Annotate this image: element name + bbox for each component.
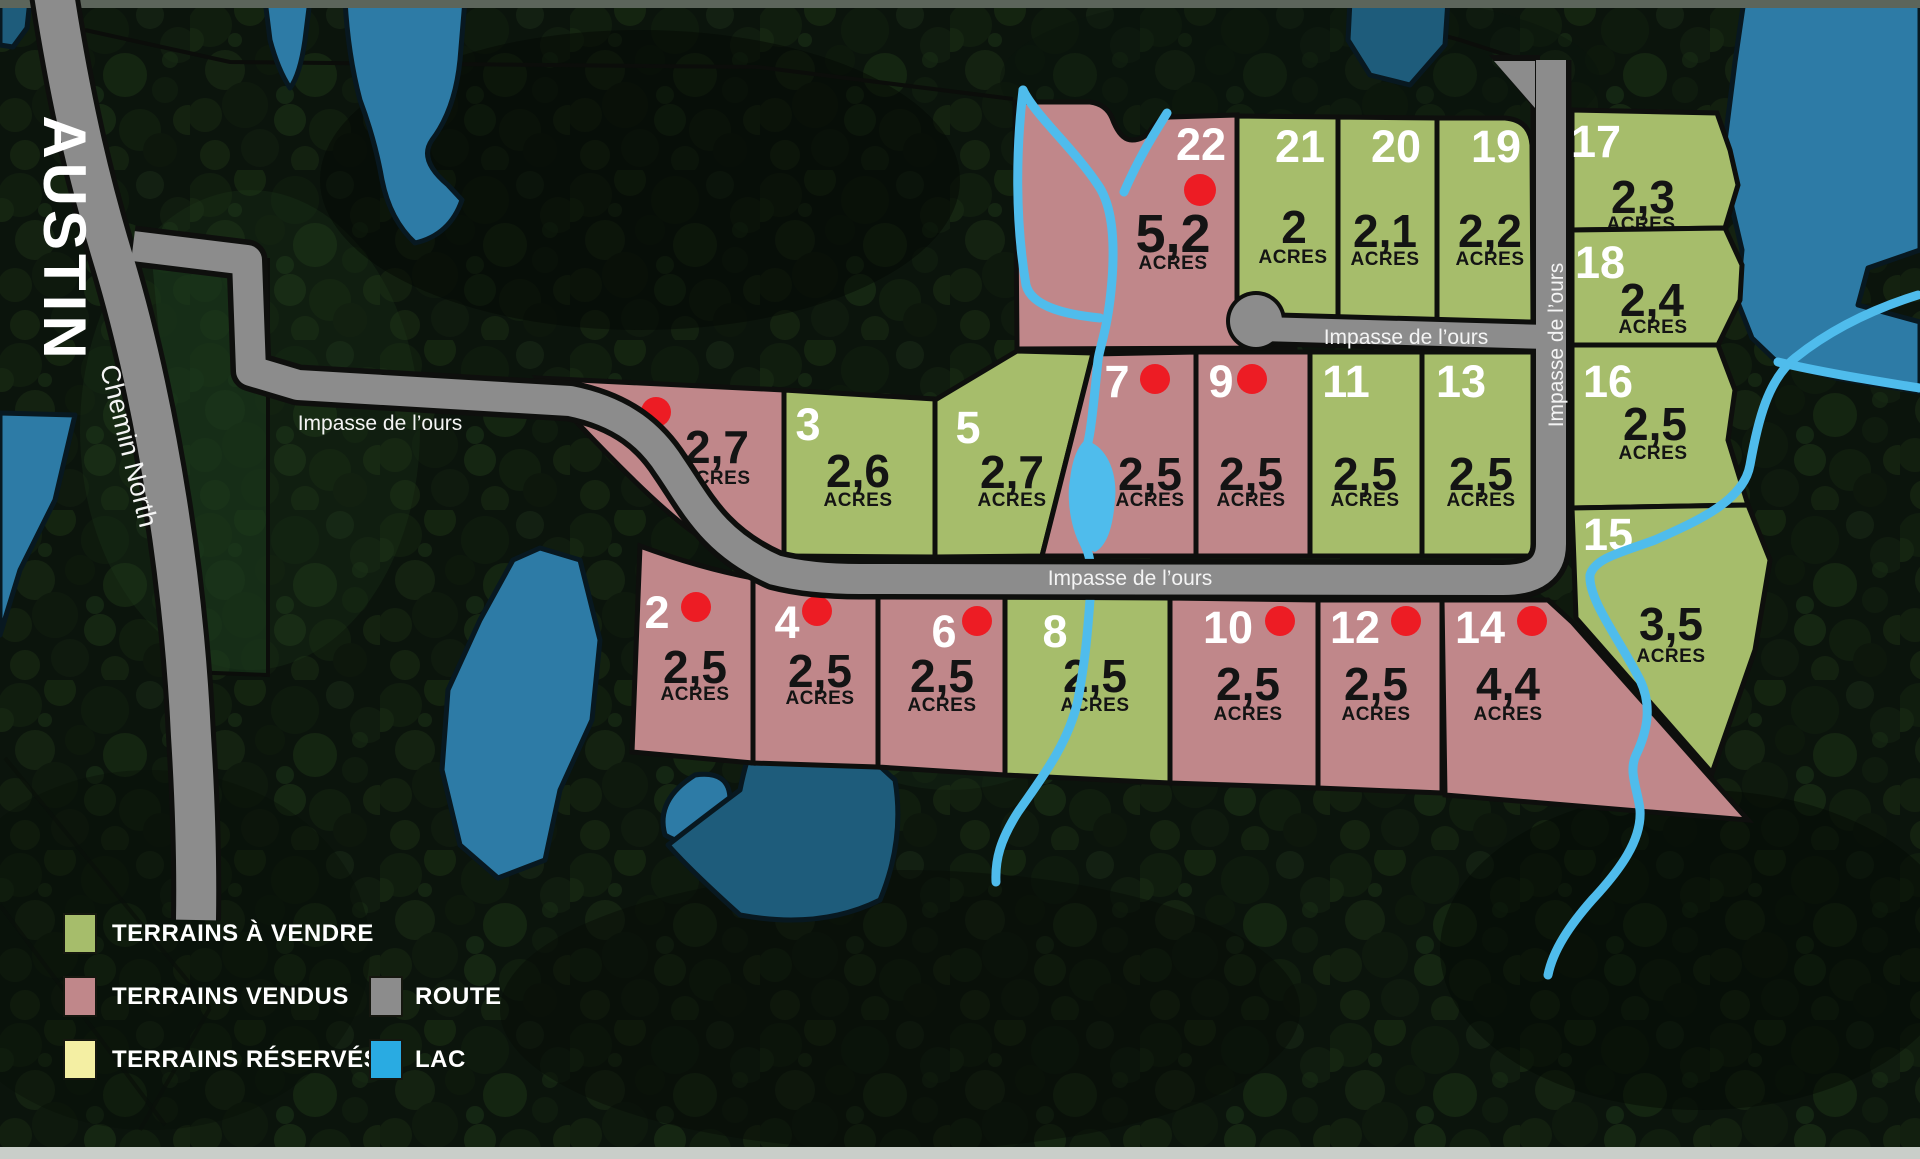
lot-22-sold-dot: [1184, 174, 1216, 206]
culdesac-circle: [1230, 295, 1282, 347]
lot-7-sold-dot: [1140, 364, 1170, 394]
lot-4: 4 2,5 ACRES: [753, 578, 878, 767]
lot-21-number: 21: [1275, 121, 1325, 172]
map-canvas: 1 2,7 ACRES 3 2,6 ACRES 5 2,7 ACRES 7 2,…: [0, 0, 1920, 1159]
lot-4-number: 4: [774, 597, 799, 648]
legend-swatch-for-sale: [64, 914, 96, 953]
lot-10-sold-dot: [1265, 606, 1295, 636]
lot-9-acres-unit: ACRES: [1216, 490, 1285, 511]
lot-11-number: 11: [1322, 356, 1370, 407]
legend-swatch-reserved: [64, 1040, 96, 1079]
lot-21-acreage: 2: [1281, 201, 1307, 253]
lot-19-number: 19: [1471, 121, 1521, 172]
lot-2-sold-dot: [681, 592, 711, 622]
lot-15-acreage: 3,5: [1639, 598, 1703, 650]
lot-22-number: 22: [1176, 119, 1226, 170]
legend-label-reserved: TERRAINS RÉSERVÉS: [112, 1045, 380, 1073]
lot-18-number: 18: [1575, 237, 1625, 288]
road-label-impasse-west: Impasse de l’ours: [298, 412, 463, 435]
lot-10-acreage: 2,5: [1216, 658, 1280, 710]
legend-swatch-route: [370, 977, 402, 1016]
lot-1-acreage: 2,7: [685, 421, 749, 473]
lot-7-acres-unit: ACRES: [1115, 490, 1184, 511]
lot-10: 10 2,5 ACRES: [1170, 598, 1318, 788]
lot-12: 12 2,5 ACRES: [1318, 600, 1442, 793]
lot-4-acres-unit: ACRES: [785, 688, 854, 709]
lot-12-number: 12: [1330, 602, 1380, 653]
lot-10-number: 10: [1203, 602, 1253, 653]
lot-14-acreage: 4,4: [1476, 658, 1540, 710]
lot-9: 9 2,5 ACRES: [1196, 352, 1310, 556]
road-label-impasse-north: Impasse de l’ours: [1324, 326, 1489, 349]
lot-15-acres-unit: ACRES: [1636, 646, 1705, 667]
lot-3: 3 2,6 ACRES: [784, 390, 935, 557]
lot-18: 18 2,4 ACRES: [1572, 228, 1742, 345]
lot-5-number: 5: [955, 402, 980, 453]
lot-4-sold-dot: [802, 596, 832, 626]
lot-20-number: 20: [1371, 121, 1421, 172]
lot-9-sold-dot: [1237, 364, 1267, 394]
region-label-austin: AUSTIN: [31, 115, 98, 362]
lot-3-acres-unit: ACRES: [823, 490, 892, 511]
lot-6-sold-dot: [962, 606, 992, 636]
legend-label-for-sale: TERRAINS À VENDRE: [112, 919, 374, 947]
lot-13-number: 13: [1436, 356, 1486, 407]
lot-6: 6 2,5 ACRES: [878, 593, 1005, 775]
lot-9-number: 9: [1208, 356, 1233, 407]
lot-14-acres-unit: ACRES: [1473, 704, 1542, 725]
lot-13-acres-unit: ACRES: [1446, 490, 1515, 511]
lot-22-acres-unit: ACRES: [1138, 253, 1207, 274]
legend-swatch-sold: [64, 977, 96, 1016]
lot-18-acres-unit: ACRES: [1618, 317, 1687, 338]
lake-east-big: [1722, 0, 1920, 392]
lot-19-acres-unit: ACRES: [1455, 249, 1524, 270]
lot-19: 19 2,2 ACRES: [1437, 118, 1533, 322]
lot-12-sold-dot: [1391, 606, 1421, 636]
lot-11: 11 2,5 ACRES: [1310, 352, 1422, 556]
legend-label-sold: TERRAINS VENDUS: [112, 983, 349, 1010]
site-plan-map: 1 2,7 ACRES 3 2,6 ACRES 5 2,7 ACRES 7 2,…: [0, 0, 1920, 1159]
legend-swatch-lac: [370, 1040, 402, 1079]
lot-2-number: 2: [644, 587, 669, 638]
lot-21: 21 2 ACRES: [1237, 116, 1338, 322]
lot-11-acres-unit: ACRES: [1330, 490, 1399, 511]
bottom-strip: [0, 1147, 1920, 1159]
lot-2-acres-unit: ACRES: [660, 684, 729, 705]
legend-label-route: ROUTE: [415, 983, 502, 1010]
lot-10-acres-unit: ACRES: [1213, 704, 1282, 725]
lot-12-acres-unit: ACRES: [1341, 704, 1410, 725]
lot-16: 16 2,5 ACRES: [1572, 345, 1748, 508]
lot-21-acres-unit: ACRES: [1258, 247, 1327, 268]
lot-12-acreage: 2,5: [1344, 658, 1408, 710]
lot-13: 13 2,5 ACRES: [1422, 352, 1533, 556]
lot-17: 17 2,3 ACRES: [1571, 110, 1738, 235]
lot-16-acres-unit: ACRES: [1618, 443, 1687, 464]
legend-label-lac: LAC: [415, 1046, 466, 1073]
lot-6-acres-unit: ACRES: [907, 695, 976, 716]
lot-7-number: 7: [1104, 356, 1129, 407]
lot-14-sold-dot: [1517, 606, 1547, 636]
lot-17-number: 17: [1571, 116, 1621, 167]
lot-2: 2 2,5 ACRES: [632, 546, 753, 763]
lot-20-acres-unit: ACRES: [1350, 249, 1419, 270]
lot-14-number: 14: [1455, 602, 1505, 653]
top-road-strip: [0, 0, 1920, 8]
lot-3-number: 3: [795, 399, 820, 450]
lot-20: 20 2,1 ACRES: [1338, 117, 1437, 322]
lot-5-acres-unit: ACRES: [977, 490, 1046, 511]
road-label-impasse-vertical: Impasse de l’ours: [1545, 263, 1568, 428]
road-label-impasse-middle: Impasse de l’ours: [1048, 567, 1213, 590]
